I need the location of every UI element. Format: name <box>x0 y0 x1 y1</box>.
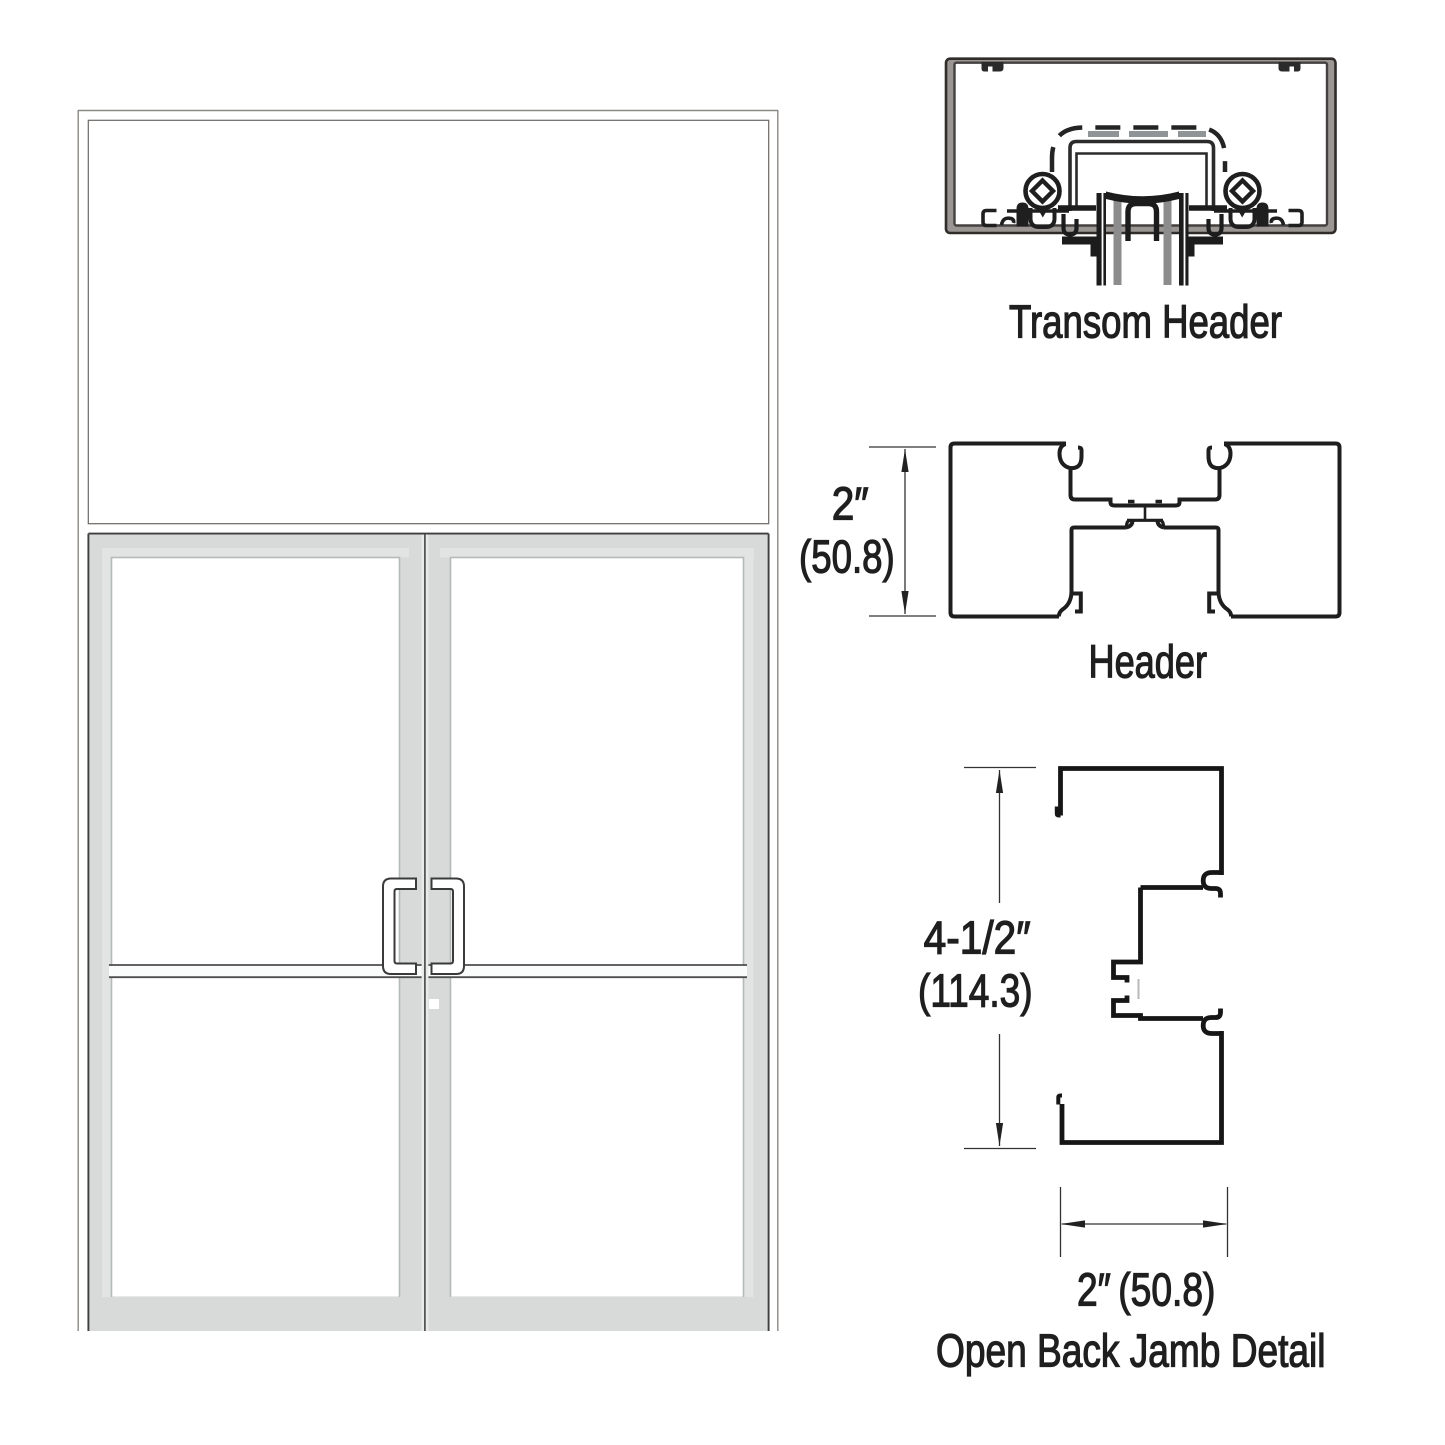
svg-text:(50.8): (50.8) <box>799 531 895 583</box>
svg-text:Open Back Jamb Detail: Open Back Jamb Detail <box>936 1325 1326 1377</box>
svg-text:Header: Header <box>1089 635 1208 687</box>
svg-text:(114.3): (114.3) <box>918 964 1033 1016</box>
svg-text:4-1/2″: 4-1/2″ <box>924 912 1031 964</box>
svg-text:2″: 2″ <box>832 478 869 530</box>
svg-text:Transom Header: Transom Header <box>1009 296 1282 348</box>
svg-text:2″ (50.8): 2″ (50.8) <box>1077 1264 1215 1316</box>
